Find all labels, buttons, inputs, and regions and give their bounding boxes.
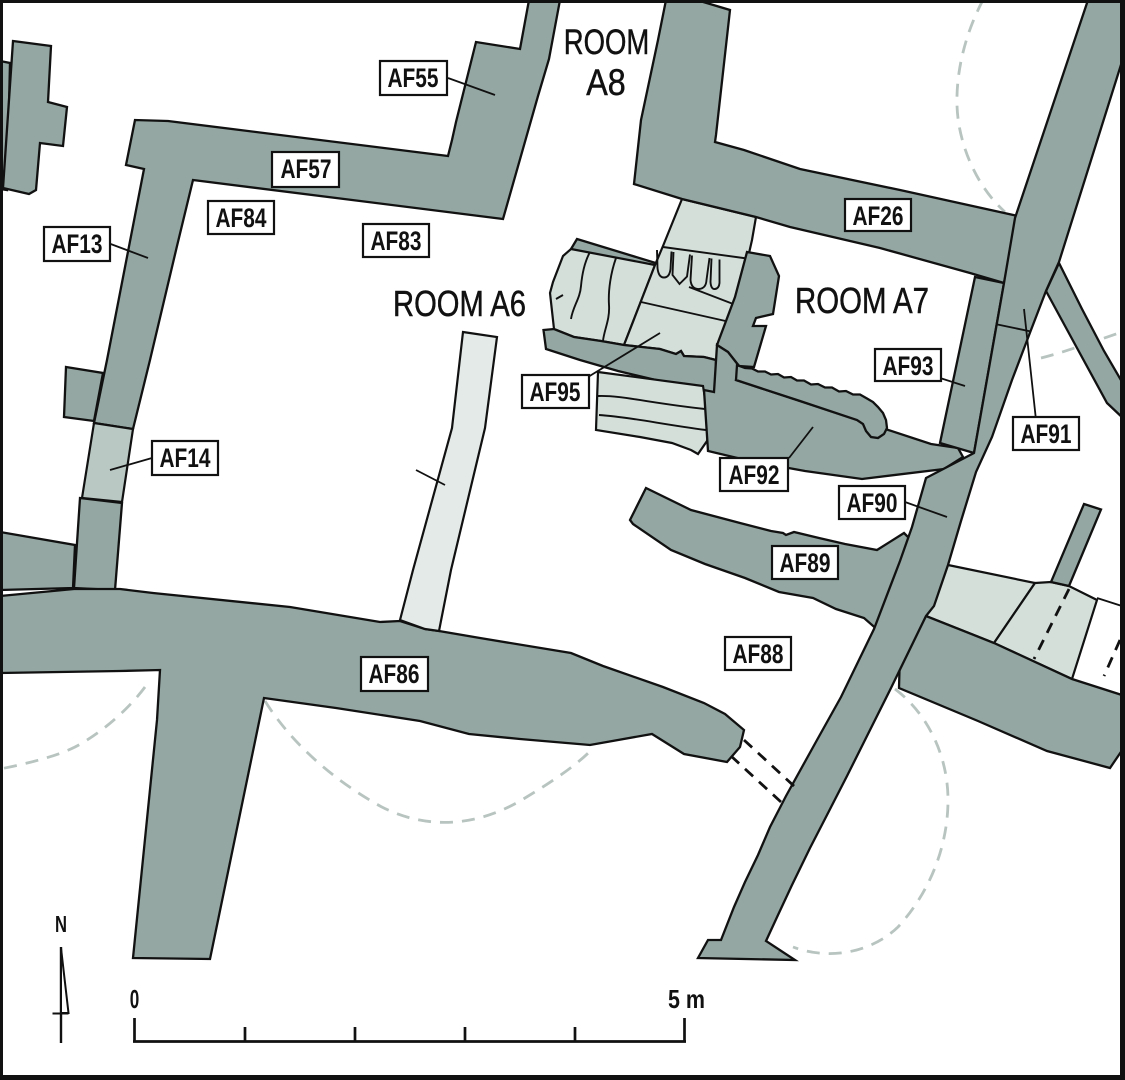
svg-text:AF91: AF91	[1021, 419, 1072, 449]
svg-text:5 m: 5 m	[668, 984, 705, 1014]
svg-text:AF84: AF84	[216, 203, 267, 233]
svg-text:AF88: AF88	[733, 639, 784, 669]
svg-text:ROOM A6: ROOM A6	[393, 283, 526, 324]
svg-text:AF26: AF26	[853, 201, 904, 231]
svg-text:AF83: AF83	[371, 226, 422, 256]
svg-text:AF90: AF90	[847, 488, 898, 518]
svg-text:0: 0	[130, 984, 140, 1014]
svg-text:AF57: AF57	[281, 154, 332, 184]
svg-text:ROOM A7: ROOM A7	[795, 280, 929, 321]
svg-text:A8: A8	[586, 62, 626, 103]
svg-text:AF95: AF95	[530, 377, 581, 407]
svg-text:AF14: AF14	[160, 443, 211, 473]
svg-text:AF13: AF13	[52, 229, 103, 259]
svg-text:AF92: AF92	[729, 460, 780, 490]
svg-text:ROOM: ROOM	[564, 23, 650, 62]
svg-text:AF86: AF86	[369, 659, 420, 689]
svg-text:AF93: AF93	[883, 351, 934, 381]
svg-text:AF89: AF89	[780, 548, 831, 578]
svg-text:AF55: AF55	[388, 63, 439, 93]
svg-text:N: N	[55, 911, 67, 937]
